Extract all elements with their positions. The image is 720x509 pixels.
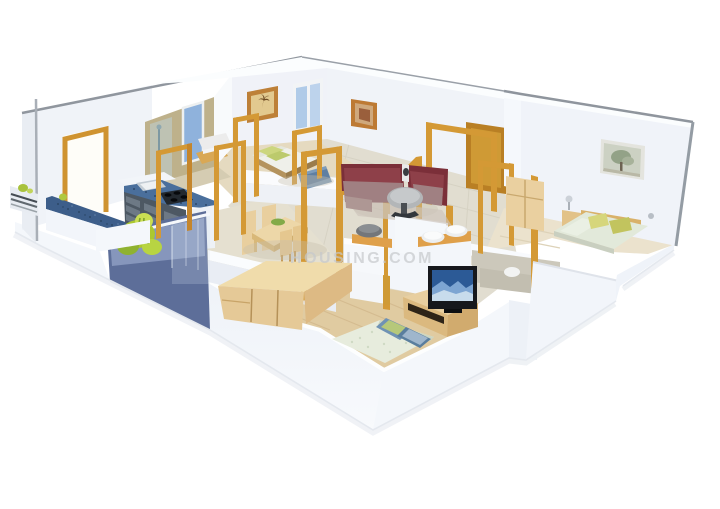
svg-text:HOUSING.COM: HOUSING.COM [290, 250, 434, 267]
